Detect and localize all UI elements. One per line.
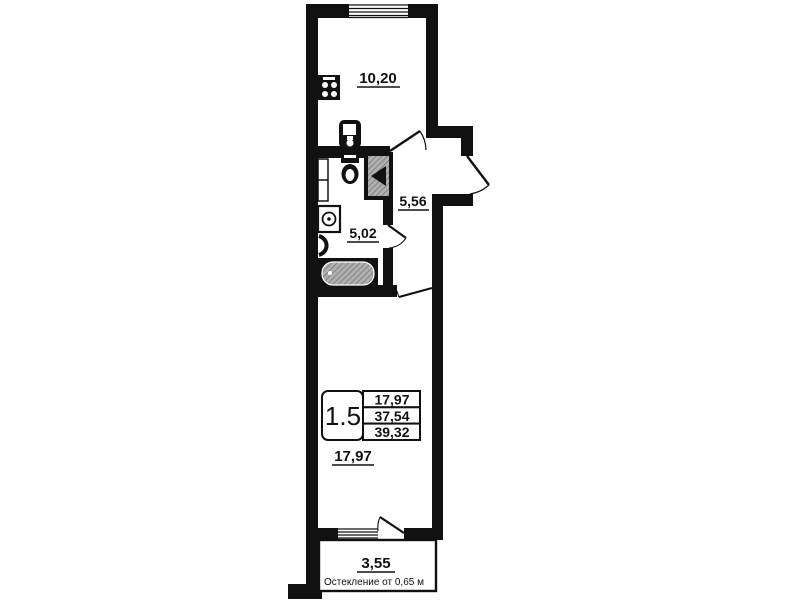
balcony-area-label: 3,55 xyxy=(361,555,390,572)
wall-foot-bottom-left xyxy=(288,584,322,599)
wall-kitchen-right xyxy=(426,4,438,128)
hallway-area-label: 5,56 xyxy=(399,193,426,209)
bathroom-door xyxy=(388,225,406,248)
wall-right xyxy=(432,194,443,540)
wall-bath-right-lower xyxy=(383,248,393,288)
wall-left-lower xyxy=(306,540,318,585)
vent-shaft xyxy=(318,159,328,201)
kitchen-area-label: 10,20 xyxy=(359,70,397,87)
kitchen-door xyxy=(390,131,426,151)
wall-bottom-left xyxy=(306,528,338,540)
kitchen-sink-icon xyxy=(339,120,361,148)
window-living-room xyxy=(338,528,378,540)
wall-bottom-right xyxy=(404,528,432,540)
window-kitchen xyxy=(349,4,408,18)
apartment-area-value: 37,54 xyxy=(374,408,409,424)
apartment-type-value: 1.5 xyxy=(325,401,361,431)
living-room-area-label: 17,97 xyxy=(334,448,372,465)
entry-door xyxy=(467,156,489,194)
glazing-note: Остекление от 0,65 м xyxy=(324,577,424,588)
floor-plan-drawing: 1.5 17,97 37,54 39,32 10,20 5,56 5,02 17… xyxy=(0,0,799,600)
washing-machine-icon xyxy=(318,206,340,232)
living-room-door xyxy=(397,288,432,297)
bathtub-icon xyxy=(318,258,378,289)
walls xyxy=(288,4,473,599)
stove-icon xyxy=(318,75,340,100)
wardrobe-icon xyxy=(364,152,393,200)
bathroom-sink-icon xyxy=(319,236,327,255)
balcony-door xyxy=(378,517,404,533)
bathroom-area-label: 5,02 xyxy=(349,225,376,241)
wall-entry-recess-right xyxy=(461,126,473,156)
total-area-value: 39,32 xyxy=(374,424,409,440)
floor-plan-page: 1.5 17,97 37,54 39,32 10,20 5,56 5,02 17… xyxy=(0,0,799,600)
living-area-value: 17,97 xyxy=(374,392,409,408)
wall-left xyxy=(306,4,318,540)
toilet-icon xyxy=(341,152,359,184)
